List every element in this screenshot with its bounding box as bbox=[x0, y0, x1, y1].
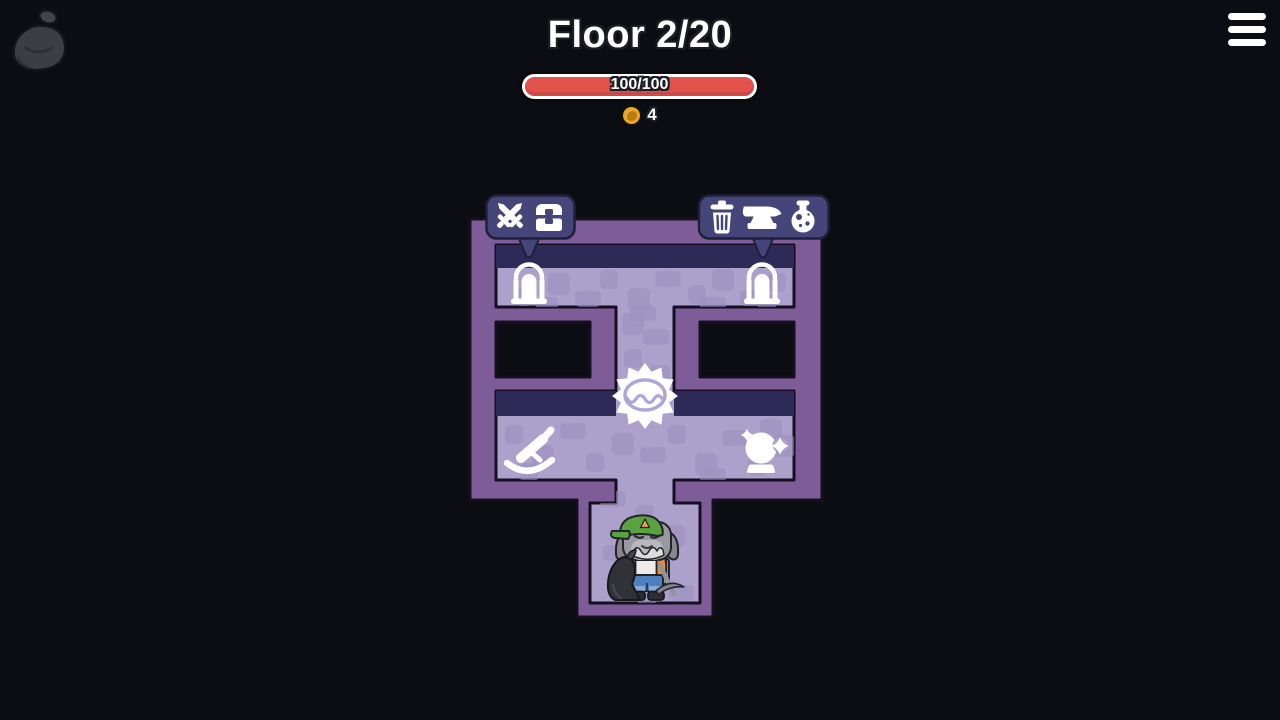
game-screen: { "hud": { "floor_label": "Floor 2/20", … bbox=[0, 0, 1280, 720]
room-tooltip-right bbox=[699, 196, 829, 239]
floor-title: Floor 2/20 bbox=[0, 14, 1280, 57]
hamburger-bar bbox=[1228, 39, 1266, 46]
hamburger-bar bbox=[1228, 13, 1266, 20]
coin-counter: 4 bbox=[0, 105, 1280, 125]
menu-button[interactable] bbox=[1228, 13, 1266, 52]
coin-count: 4 bbox=[647, 105, 656, 125]
hp-value: 100/100 bbox=[525, 76, 754, 94]
dungeon-map bbox=[440, 180, 860, 645]
hp-bar: 100/100 bbox=[522, 74, 757, 99]
hamburger-bar bbox=[1228, 26, 1266, 33]
room-tooltip-left bbox=[487, 196, 575, 239]
coin-icon bbox=[623, 107, 640, 124]
